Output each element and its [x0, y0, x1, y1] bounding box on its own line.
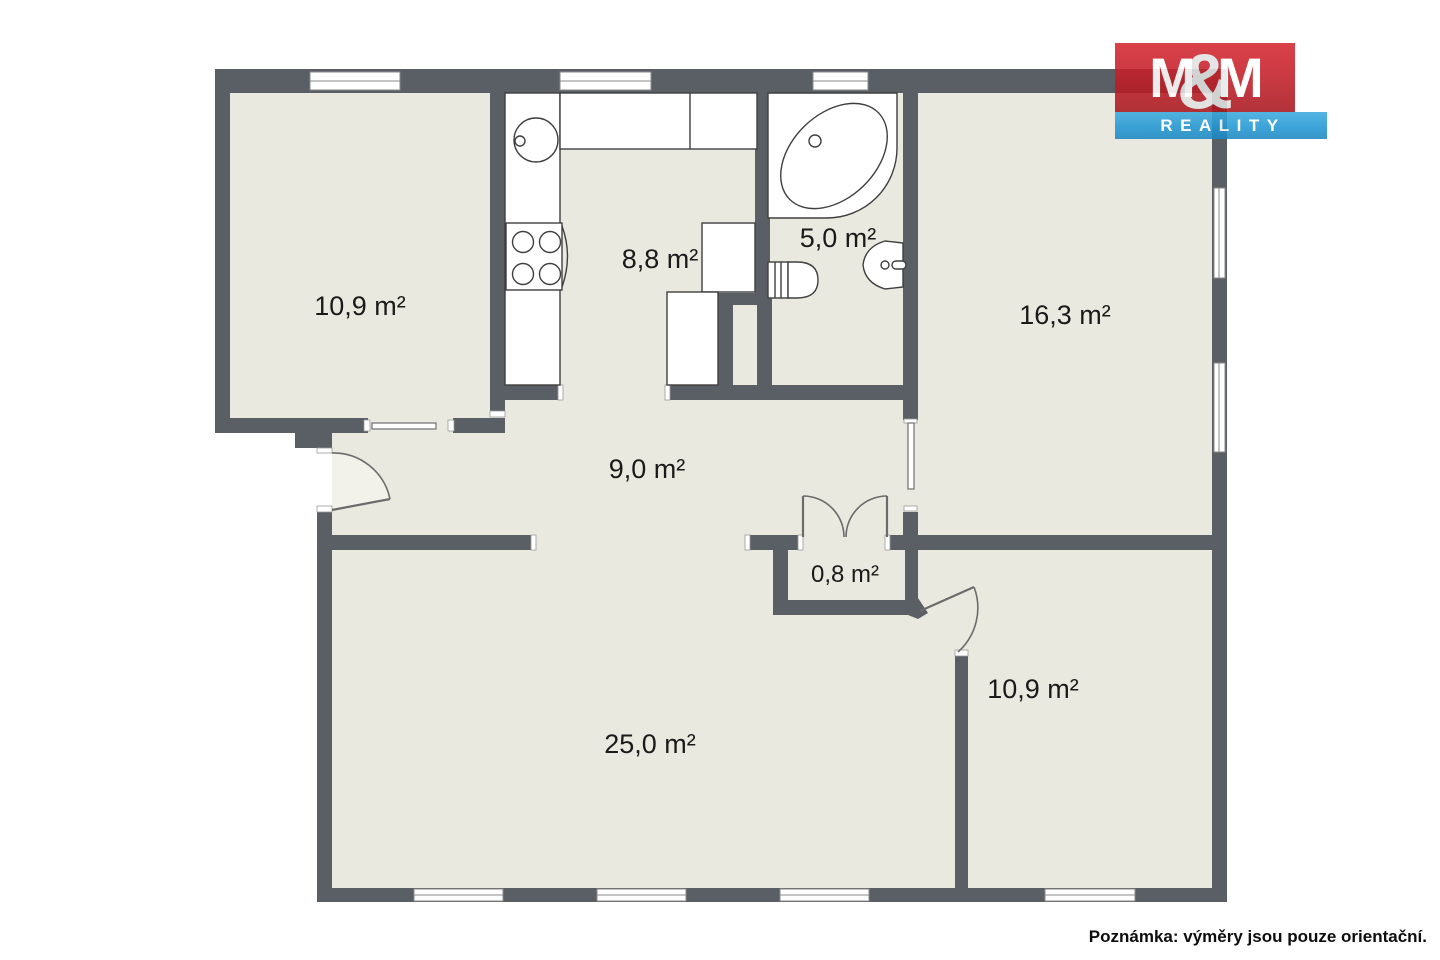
room-label-bedroom-right: 16,3 m²	[1019, 300, 1111, 330]
toilet	[768, 262, 818, 298]
kitchen-cabinet	[702, 223, 755, 292]
kitchen-cabinet	[667, 292, 718, 385]
floor-plan-page: 10,9 m² 8,8 m² 5,0 m² 16,3 m² 9,0 m² 0,8…	[0, 0, 1440, 960]
logo-letter-m-left: M	[1149, 50, 1193, 106]
window	[597, 889, 686, 901]
window	[414, 889, 503, 901]
stove-burner	[513, 232, 534, 253]
stove-burner	[513, 264, 534, 285]
window	[1214, 363, 1225, 452]
room-label-closet: 0,8 m²	[811, 561, 879, 588]
room-label-top-left: 10,9 m²	[314, 291, 406, 321]
stove-burner	[540, 264, 561, 285]
bathtub-drain	[809, 135, 821, 147]
room-label-hallway: 9,0 m²	[609, 454, 686, 484]
mm-reality-logo: M & M REALITY	[1115, 43, 1327, 139]
logo-mm-red-box: M & M	[1115, 43, 1295, 112]
room-label-living-room: 25,0 m²	[604, 729, 696, 759]
room-label-bathroom: 5,0 m²	[800, 223, 877, 253]
window	[1045, 889, 1135, 901]
floorplan-drawing: 10,9 m² 8,8 m² 5,0 m² 16,3 m² 9,0 m² 0,8…	[0, 0, 1440, 960]
room-label-bedroom-bottom: 10,9 m²	[987, 674, 1079, 704]
kitchen-counter-top	[560, 93, 757, 149]
room-label-kitchen: 8,8 m²	[622, 244, 699, 274]
window	[310, 72, 400, 90]
kitchen-sink-faucet	[515, 136, 525, 146]
logo-letter-m-right: M	[1217, 50, 1261, 106]
window	[780, 889, 869, 901]
window	[560, 72, 651, 90]
shaft	[733, 305, 757, 385]
note-text: Poznámka: výměry jsou pouze orientační.	[1089, 927, 1427, 947]
window	[813, 72, 868, 90]
window	[1214, 188, 1225, 278]
stove-burner	[540, 232, 561, 253]
